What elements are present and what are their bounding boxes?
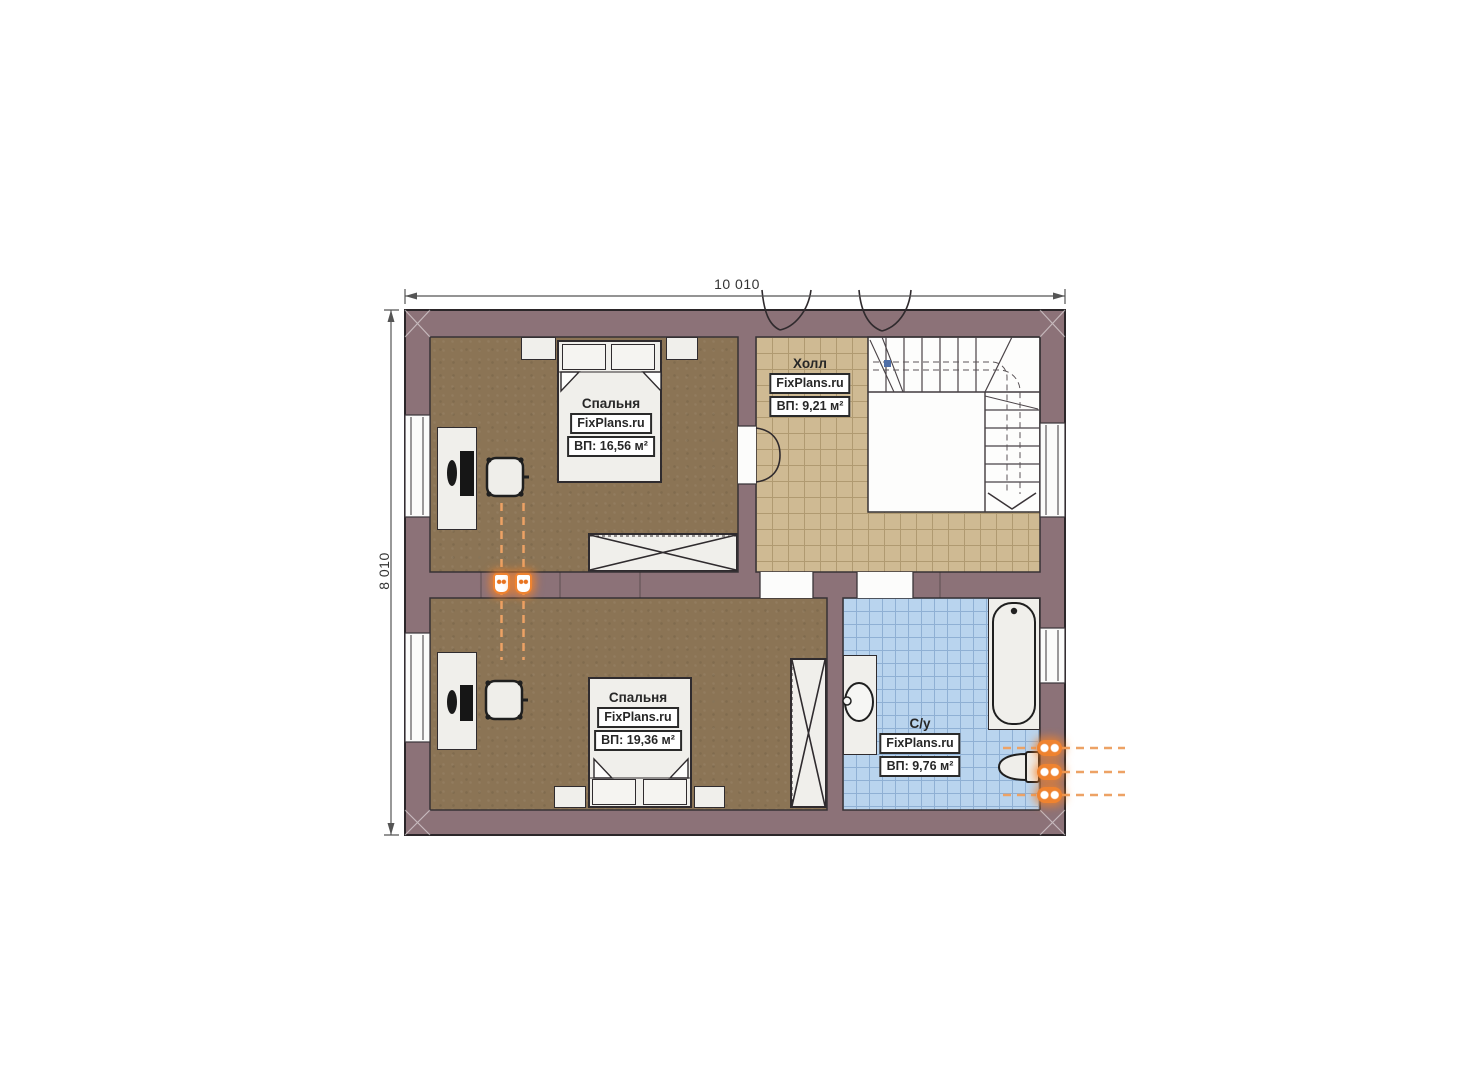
stairwell-area	[868, 337, 1040, 512]
pillow	[562, 344, 606, 370]
room-label-hall: Холл FixPlans.ru ВП: 9,21 м²	[769, 356, 850, 417]
brand-box: FixPlans.ru	[570, 413, 651, 434]
bathtub-icon	[988, 598, 1040, 730]
room-name: Холл	[793, 356, 827, 371]
radiator-icon	[1037, 787, 1062, 803]
room-name: Спальня	[609, 690, 667, 705]
nightstand	[666, 337, 698, 360]
nightstand	[521, 337, 556, 360]
brand-box: FixPlans.ru	[879, 733, 960, 754]
dimension-height-label: 8 010	[376, 536, 392, 606]
wardrobe-icon	[790, 658, 827, 808]
room-label-bedroom2: Спальня FixPlans.ru ВП: 19,36 м²	[594, 690, 682, 751]
pillow	[611, 344, 655, 370]
room-name: Спальня	[582, 396, 640, 411]
pillow	[592, 779, 636, 805]
radiator-icon	[1037, 764, 1062, 780]
sink-counter	[843, 655, 877, 755]
area-box: ВП: 9,21 м²	[770, 396, 851, 417]
radiator-icon	[515, 573, 532, 594]
nightstand	[694, 786, 725, 808]
brand-box: FixPlans.ru	[597, 707, 678, 728]
nightstand	[554, 786, 586, 808]
radiator-icon	[493, 573, 510, 594]
room-label-bathroom: С/у FixPlans.ru ВП: 9,76 м²	[879, 716, 960, 777]
area-box: ВП: 16,56 м²	[567, 436, 655, 457]
pillow	[643, 779, 687, 805]
area-box: ВП: 9,76 м²	[880, 756, 961, 777]
room-label-bedroom1: Спальня FixPlans.ru ВП: 16,56 м²	[567, 396, 655, 457]
wardrobe-icon	[588, 533, 738, 572]
area-box: ВП: 19,36 м²	[594, 730, 682, 751]
floor-plan-canvas: Спальня FixPlans.ru ВП: 16,56 м² Холл Fi…	[0, 0, 1473, 1080]
dimension-width-label: 10 010	[697, 276, 777, 292]
room-name: С/у	[909, 716, 930, 731]
brand-box: FixPlans.ru	[769, 373, 850, 394]
radiator-icon	[1037, 740, 1062, 756]
computer-monitor-icon	[460, 685, 473, 721]
computer-monitor-icon	[460, 451, 474, 496]
